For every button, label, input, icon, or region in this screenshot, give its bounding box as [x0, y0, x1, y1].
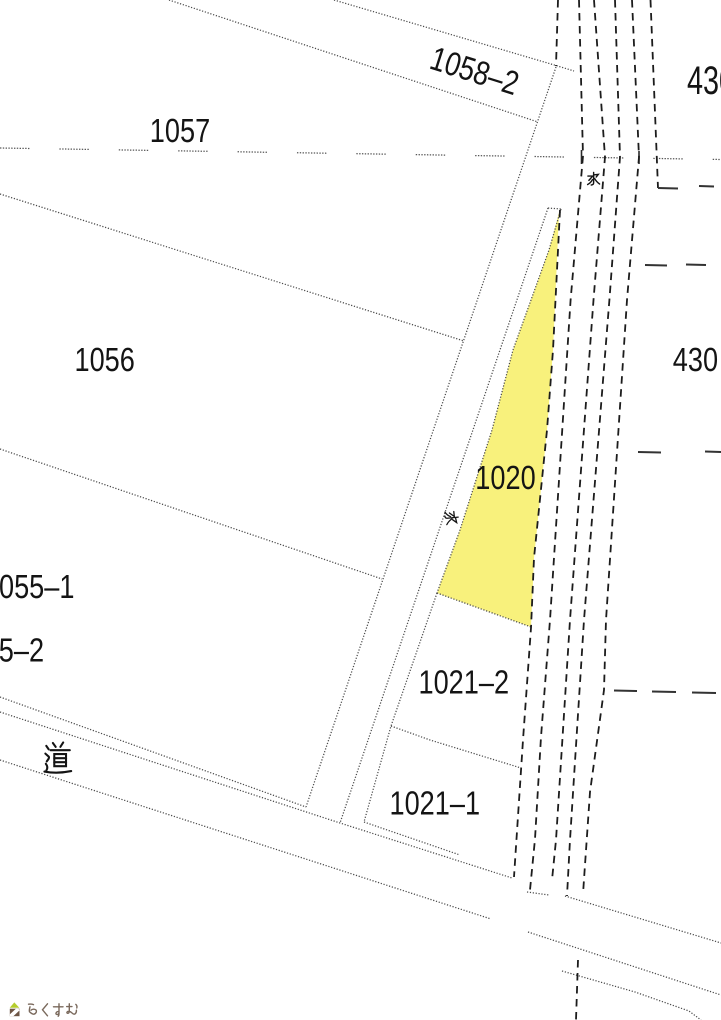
svg-text:430: 430 [673, 342, 718, 379]
svg-text:1021–1: 1021–1 [390, 786, 481, 823]
svg-text:1057: 1057 [150, 113, 210, 150]
svg-text:1055–1: 1055–1 [0, 569, 74, 606]
svg-text:1058–2: 1058–2 [426, 40, 524, 103]
svg-text:430: 430 [687, 59, 721, 103]
svg-text:1056: 1056 [75, 342, 135, 379]
svg-text:1055–2: 1055–2 [0, 633, 44, 670]
svg-text:1021–2: 1021–2 [419, 665, 510, 702]
svg-text:1020: 1020 [475, 460, 535, 497]
